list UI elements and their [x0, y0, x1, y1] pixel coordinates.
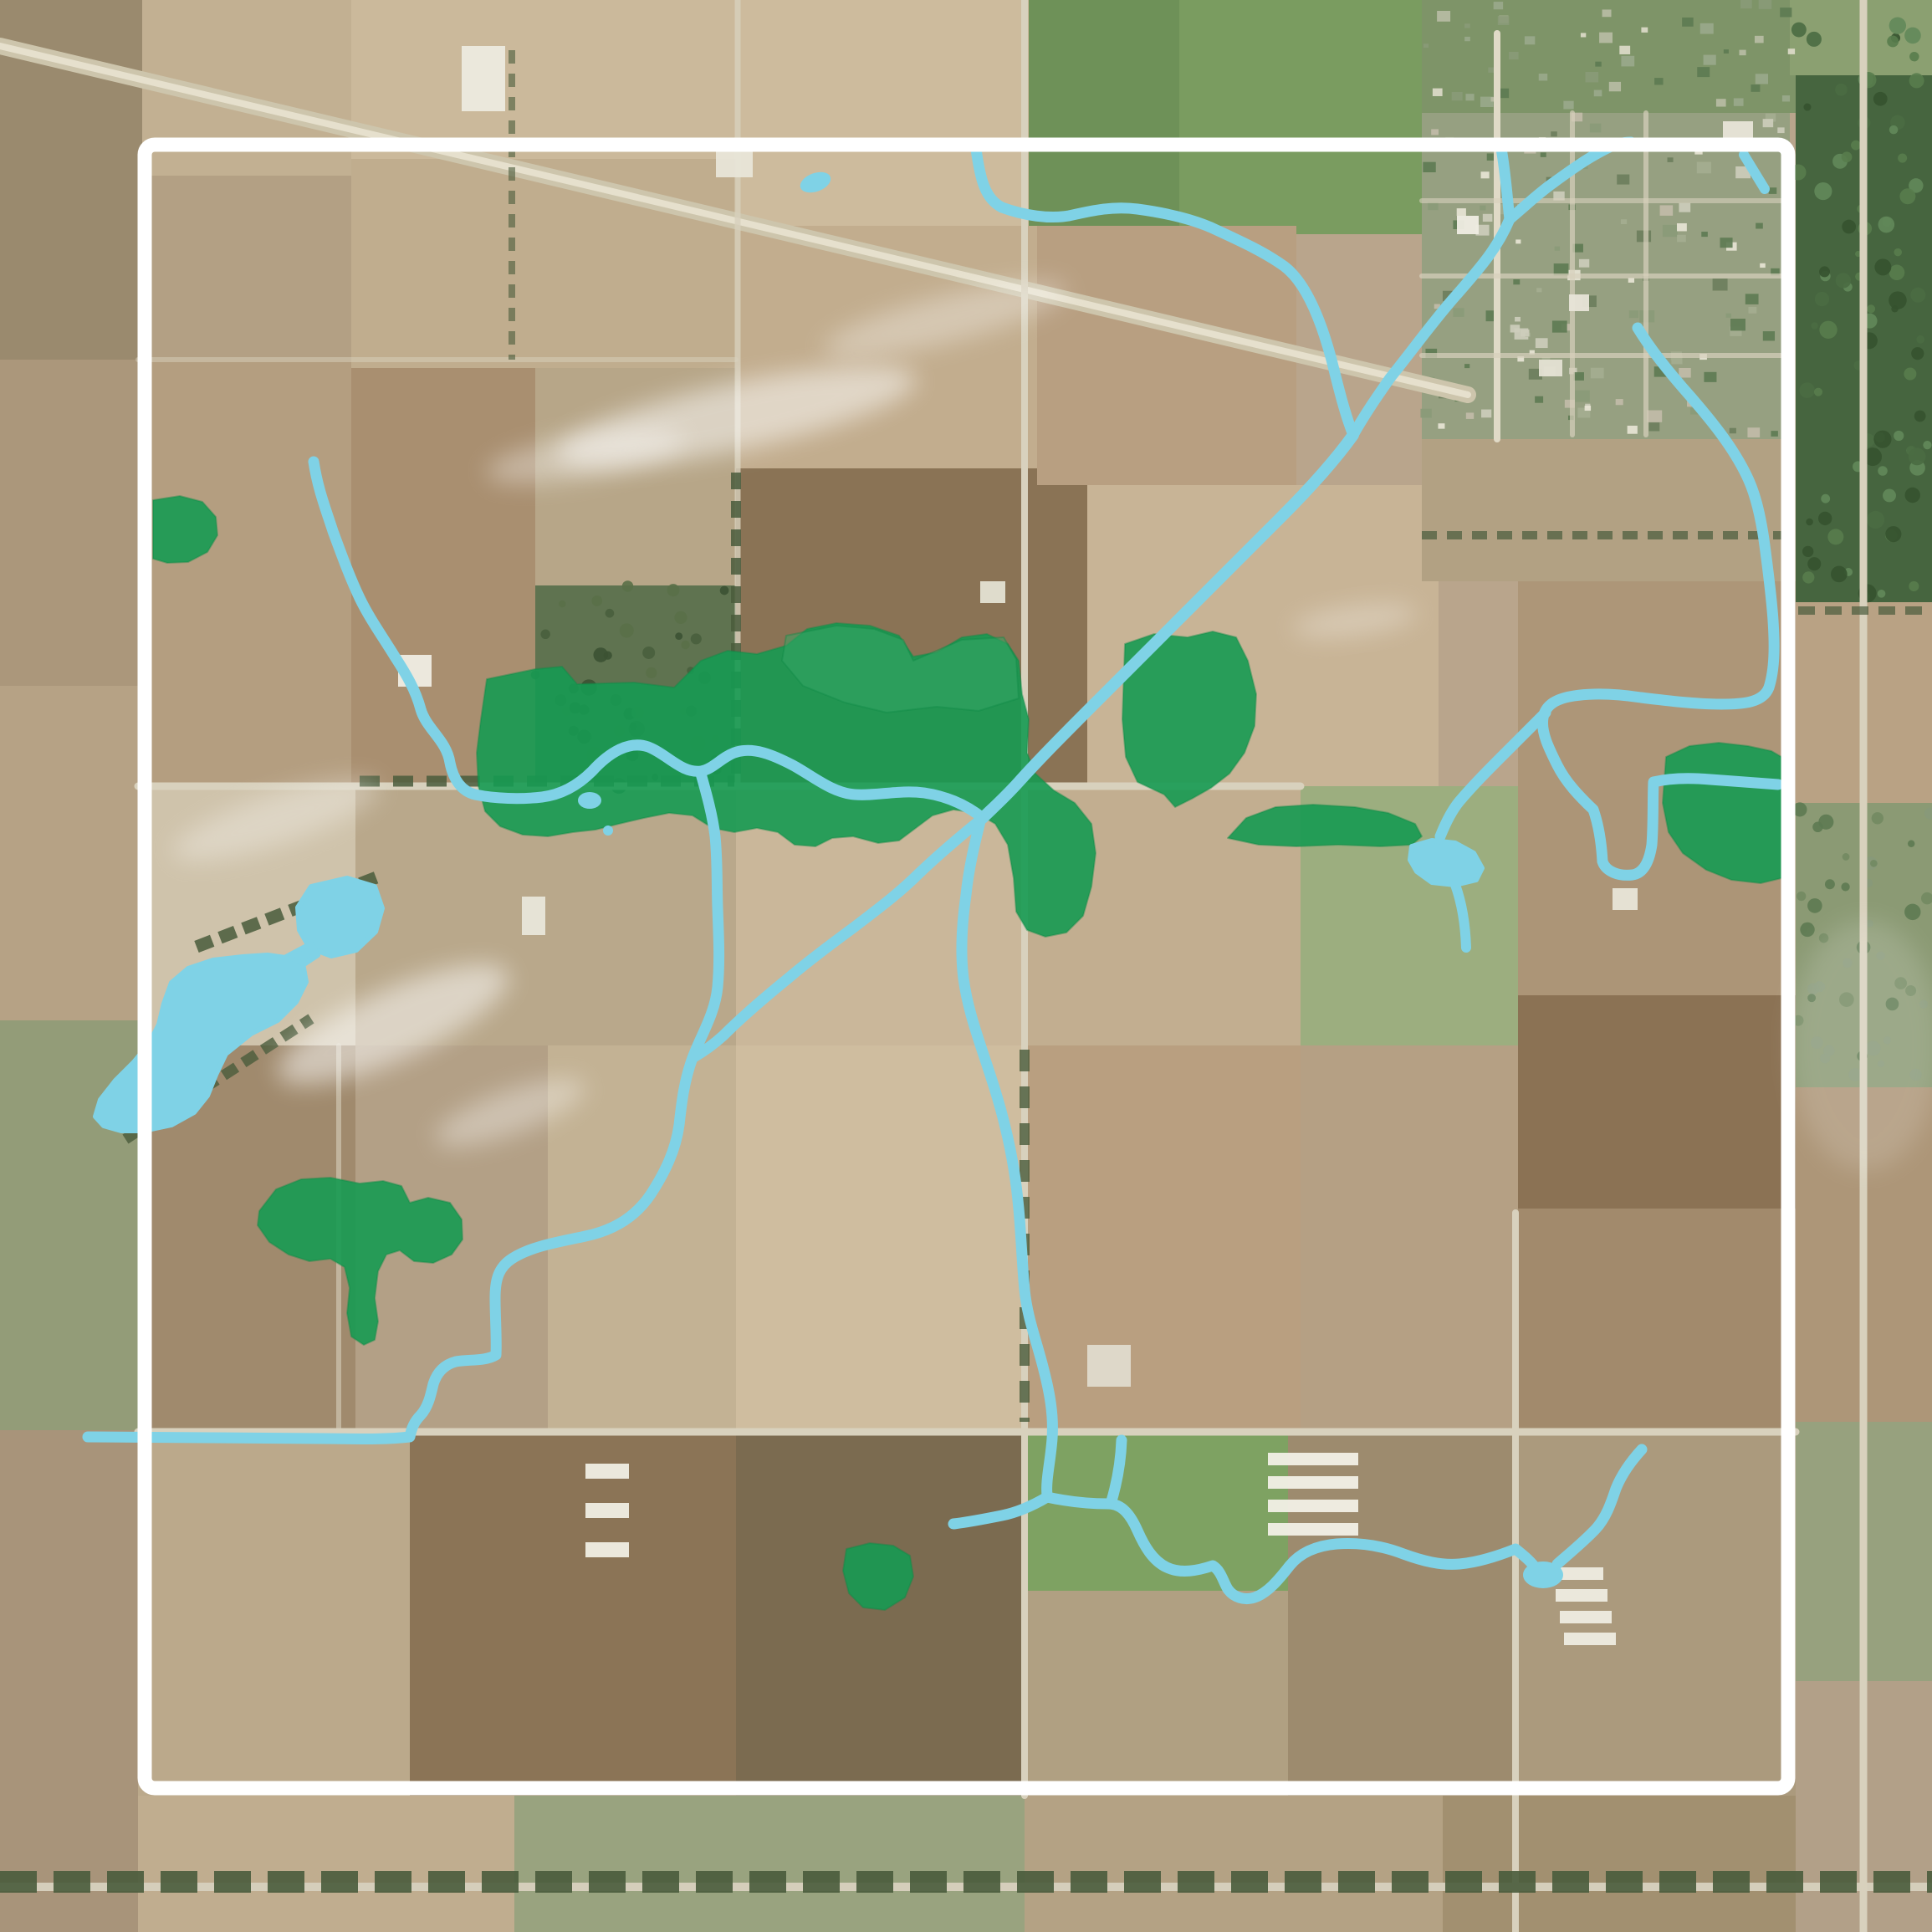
town-speckle-speck	[1453, 308, 1464, 317]
woodland-center-left-blob	[540, 630, 549, 639]
town-speckle-speck	[1466, 412, 1474, 418]
forest-right-top-blob	[1873, 92, 1888, 106]
town-speckle-speck	[1536, 338, 1548, 348]
town-speckle-speck	[1679, 203, 1690, 212]
building	[1564, 1633, 1616, 1645]
town-speckle-speck	[1423, 162, 1435, 172]
town-speckle-speck	[1745, 294, 1759, 304]
town-speckle-speck	[1481, 171, 1490, 178]
town-speckle-top-speck	[1621, 56, 1634, 67]
forest-right-top-blob	[1842, 220, 1856, 234]
building	[1560, 1611, 1612, 1623]
field-patch	[0, 1430, 142, 1932]
building	[585, 1503, 629, 1518]
forest-right-top-blob	[1807, 557, 1821, 570]
town-speckle-speck	[1628, 426, 1638, 434]
forest-right-top-blob	[1878, 590, 1886, 598]
forest-right-top-blob	[1842, 151, 1853, 162]
woodland-center-left-blob	[622, 580, 633, 591]
town-speckle-speck	[1420, 409, 1431, 418]
town-speckle-top-speck	[1739, 50, 1745, 56]
town-speckle-top-speck	[1452, 92, 1463, 100]
building	[980, 581, 1005, 603]
forest-right-top-blob	[1799, 382, 1815, 398]
forest-right-mid-blob	[1841, 882, 1849, 891]
building	[1268, 1476, 1358, 1489]
town-speckle-speck	[1457, 208, 1466, 216]
forest-right-top-blob	[1835, 84, 1848, 96]
field-patch	[351, 159, 736, 368]
field-patch	[1025, 1591, 1301, 1796]
field-patch	[1518, 1209, 1796, 1430]
field-patch	[138, 1796, 514, 1932]
forest-right-top-blob	[1851, 141, 1861, 151]
woodland-center-left-blob	[720, 586, 729, 595]
forest-right-top-blob	[1867, 304, 1875, 313]
town-speckle-top-speck	[1498, 16, 1510, 25]
forest-right-top-blob	[1815, 292, 1829, 306]
forest-right-top-blob	[1889, 291, 1907, 309]
town-speckle-top-speck	[1700, 23, 1714, 34]
forest-right-top-blob	[1887, 36, 1899, 48]
woodland-center-left-blob	[674, 611, 687, 624]
field-patch	[142, 360, 351, 786]
town-speckle-top-speck	[1602, 9, 1612, 17]
pond-mid-dot	[603, 825, 613, 836]
field-patch	[1179, 0, 1430, 234]
town-speckle-speck	[1704, 372, 1716, 382]
town-speckle-top-speck	[1509, 52, 1519, 59]
town-speckle-top-speck	[1581, 33, 1586, 37]
town-speckle-speck	[1701, 232, 1708, 237]
town-speckle-speck	[1536, 288, 1541, 292]
building	[1268, 1500, 1358, 1512]
town-speckle-top-speck	[1740, 0, 1752, 8]
town-speckle-speck	[1677, 235, 1686, 243]
forest-right-top-blob	[1874, 258, 1891, 275]
town-speckle-top-speck	[1724, 49, 1729, 54]
forest-right-top-blob	[1894, 248, 1902, 257]
forest-right-mid-blob	[1870, 860, 1878, 867]
town-speckle-top-speck	[1782, 95, 1790, 101]
town-speckle-speck	[1510, 325, 1521, 332]
forest-right-top-blob	[1811, 322, 1817, 329]
town-speckle-speck	[1730, 319, 1745, 330]
town-speckle-top-speck	[1494, 2, 1503, 9]
town-speckle-top-speck	[1464, 37, 1470, 41]
town-speckle-speck	[1579, 259, 1589, 268]
forest-right-top-blob	[1899, 188, 1915, 204]
town-speckle-speck	[1677, 223, 1687, 231]
woodland-center-left-blob	[620, 623, 634, 637]
town-speckle-top-speck	[1586, 72, 1599, 82]
forest-right-top-blob	[1814, 182, 1832, 200]
field-patch	[1037, 226, 1296, 485]
town-speckle-speck	[1480, 206, 1485, 211]
town-speckle-top-speck	[1682, 18, 1693, 27]
town-speckle-speck	[1621, 219, 1627, 224]
woodland-center-left-blob	[681, 641, 689, 649]
forest-right-top-blob	[1904, 28, 1921, 44]
map-root	[0, 0, 1932, 1932]
town-speckle-top-speck	[1609, 82, 1621, 91]
town-speckle-speck	[1660, 205, 1674, 215]
building	[1539, 360, 1562, 376]
town-speckle-speck	[1535, 396, 1543, 403]
town-speckle-top-speck	[1788, 49, 1795, 54]
forest-right-mid-blob	[1797, 892, 1806, 901]
town-speckle-speck	[1552, 320, 1567, 332]
town-speckle-speck	[1590, 124, 1601, 133]
town-speckle-top-speck	[1734, 98, 1744, 105]
town-speckle-speck	[1438, 423, 1444, 428]
woodland-center-left-blob	[675, 632, 682, 640]
forest-right-top-blob	[1819, 266, 1830, 277]
town-speckle-speck	[1663, 225, 1678, 237]
field-patch	[142, 176, 351, 360]
forest-right-top-blob	[1821, 494, 1830, 503]
forest-right-top-blob	[1791, 23, 1807, 38]
forest-right-top-blob	[1814, 388, 1822, 396]
forest-right-top-blob	[1818, 512, 1832, 525]
forest-right-top-blob	[1911, 347, 1924, 360]
town-speckle-speck	[1515, 239, 1521, 243]
town-speckle-top-speck	[1716, 99, 1726, 106]
town-speckle-top-speck	[1423, 43, 1429, 48]
town-speckle-top-speck	[1437, 11, 1450, 22]
forest-right-top-blob	[1889, 125, 1899, 135]
town-speckle-speck	[1747, 427, 1760, 437]
town-speckle-speck	[1513, 279, 1520, 284]
forest-right-top-blob	[1909, 52, 1919, 61]
forest-right-top-blob	[1904, 368, 1916, 381]
field-patch	[1025, 1045, 1301, 1432]
building	[1457, 216, 1479, 234]
woodland-center-left-blob	[559, 601, 565, 607]
map-canvas[interactable]	[0, 0, 1932, 1932]
forest-right-top-blob	[1819, 321, 1837, 339]
forest-right-top-blob	[1807, 32, 1822, 47]
town-speckle-speck	[1713, 279, 1728, 290]
forest-right-top-blob	[1878, 466, 1888, 476]
forest-right-top-blob	[1806, 519, 1813, 526]
woodland-center-left-blob	[667, 584, 680, 596]
town-speckle-speck	[1574, 372, 1584, 381]
forest-right-top-blob	[1803, 104, 1811, 111]
town-speckle-top-speck	[1563, 101, 1573, 110]
field-patch	[0, 360, 142, 686]
building	[462, 46, 505, 111]
forest-right-top-blob	[1802, 571, 1814, 583]
town-speckle-speck	[1697, 162, 1711, 174]
woodland-center-left-blob	[604, 651, 612, 659]
building	[585, 1542, 629, 1557]
forest-right-mid-blob	[1843, 853, 1850, 861]
town-speckle-top-speck	[1759, 0, 1772, 9]
field-patch	[1422, 0, 1798, 113]
town-speckle-speck	[1464, 364, 1469, 368]
woodland-center-left-blob	[606, 609, 615, 618]
forest-right-top-blob	[1914, 411, 1926, 422]
town-speckle-speck	[1481, 410, 1491, 418]
woodland-center-left-blob	[642, 647, 655, 659]
forest-right-top-blob	[1898, 154, 1907, 163]
forest-right-top-blob	[1909, 448, 1926, 466]
woodland-center-left-blob	[591, 595, 602, 606]
town-speckle-top-speck	[1756, 74, 1768, 84]
field-patch	[0, 686, 142, 1020]
forest-right-top-blob	[1873, 431, 1891, 448]
town-speckle-top-speck	[1704, 55, 1716, 65]
building	[522, 897, 545, 935]
building	[1613, 888, 1638, 910]
forest-right-top-blob	[1923, 441, 1931, 449]
town-speckle-speck	[1629, 310, 1638, 318]
town-speckle-top-speck	[1654, 78, 1663, 84]
forest-right-top-blob	[1894, 431, 1904, 441]
forest-right-top-blob	[1867, 511, 1884, 529]
forest-right-top-blob	[1885, 526, 1901, 542]
town-speckle-speck	[1760, 263, 1766, 268]
town-speckle-speck	[1555, 247, 1560, 251]
forest-right-top-blob	[1827, 529, 1843, 544]
town-speckle-top-speck	[1641, 28, 1648, 33]
building	[585, 1464, 629, 1479]
town-speckle-speck	[1763, 331, 1775, 340]
town-speckle-speck	[1616, 399, 1623, 405]
field-patch	[138, 1432, 410, 1796]
forest-right-top-blob	[1905, 488, 1920, 503]
town-speckle-speck	[1763, 119, 1774, 127]
town-speckle-speck	[1756, 223, 1763, 229]
forest-right-top-blob	[1802, 546, 1813, 557]
town-speckle-speck	[1771, 431, 1777, 437]
field-patch	[1518, 995, 1796, 1209]
town-speckle-speck	[1483, 214, 1493, 222]
town-speckle-top-speck	[1525, 36, 1535, 44]
forest-right-mid-blob	[1800, 923, 1814, 937]
town-speckle-speck	[1551, 131, 1557, 136]
field-patch	[1025, 1796, 1443, 1932]
field-patch	[736, 1045, 1025, 1432]
town-speckle-top-speck	[1780, 8, 1791, 17]
town-speckle-speck	[1730, 428, 1736, 434]
building	[1268, 1523, 1358, 1536]
town-speckle-speck	[1679, 368, 1690, 378]
building	[1087, 1345, 1131, 1387]
town-speckle-top-speck	[1751, 84, 1760, 92]
pond-mid-small	[578, 792, 601, 809]
town-speckle-speck	[1575, 391, 1590, 402]
town-speckle-speck	[1647, 411, 1662, 422]
building	[1569, 294, 1589, 311]
field-patch	[514, 1796, 1025, 1932]
field-patch	[1518, 1432, 1796, 1796]
field-patch	[736, 1432, 1025, 1796]
building	[1556, 1589, 1607, 1602]
town-speckle-speck	[1726, 314, 1731, 318]
town-speckle-top-speck	[1599, 33, 1613, 43]
town-speckle-speck	[1521, 330, 1529, 336]
town-speckle-speck	[1668, 157, 1674, 162]
forest-right-top-blob	[1831, 566, 1848, 583]
forest-right-top-blob	[1878, 217, 1895, 233]
town-speckle-top-speck	[1539, 74, 1547, 80]
forest-right-top-blob	[1836, 273, 1851, 288]
town-speckle-top-speck	[1594, 90, 1602, 97]
town-speckle-speck	[1541, 152, 1546, 157]
building	[1268, 1453, 1358, 1465]
woodland-center-left-blob	[646, 667, 657, 678]
forest-right-mid-blob	[1904, 904, 1920, 920]
forest-right-top-blob	[1909, 581, 1919, 591]
town-speckle-speck	[1431, 129, 1439, 135]
town-speckle-speck	[1748, 307, 1756, 314]
forest-right-top-blob	[1883, 489, 1896, 503]
town-speckle-speck	[1769, 187, 1777, 194]
town-speckle-speck	[1648, 422, 1659, 431]
town-speckle-speck	[1720, 238, 1732, 248]
woodland-center-left-blob	[691, 633, 702, 644]
town-speckle-speck	[1515, 317, 1521, 322]
forest-right-top-blob	[1910, 288, 1925, 303]
town-speckle-speck	[1777, 127, 1784, 133]
town-speckle-top-speck	[1433, 89, 1443, 96]
forest-right-top-blob	[1916, 335, 1924, 344]
town-speckle-speck	[1617, 175, 1629, 185]
town-speckle-top-speck	[1697, 67, 1710, 77]
town-speckle-top-speck	[1464, 23, 1470, 28]
forest-right-top-blob	[1889, 17, 1906, 33]
town-speckle-top-speck	[1755, 36, 1764, 43]
forest-right-mid-blob	[1807, 898, 1822, 913]
town-speckle-speck	[1585, 406, 1591, 411]
town-speckle-top-speck	[1619, 46, 1630, 54]
field-patch	[1029, 0, 1179, 226]
field-patch	[1301, 1045, 1518, 1430]
forest-right-mid-blob	[1812, 822, 1823, 833]
town-speckle-top-speck	[1465, 94, 1474, 100]
forest-right-top-blob	[1909, 73, 1924, 88]
town-speckle-speck	[1591, 368, 1604, 379]
town-speckle-top-speck	[1595, 62, 1601, 67]
forest-right-mid-blob	[1825, 879, 1835, 889]
forest-right-mid-blob	[1908, 841, 1914, 847]
field-patch	[410, 1432, 736, 1796]
forest-right-mid-blob	[1872, 812, 1883, 824]
forest-right-top-blob	[1889, 264, 1905, 280]
